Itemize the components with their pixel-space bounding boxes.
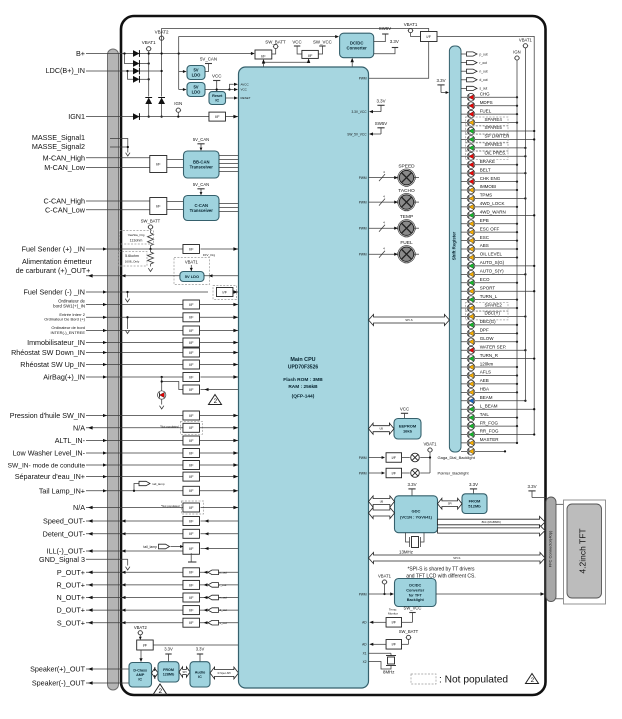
svg-text:TAIL: TAIL [480, 412, 490, 417]
svg-text:for TFT: for TFT [409, 593, 423, 597]
svg-text:PWM: PWM [359, 200, 367, 204]
svg-text:UB: UB [380, 500, 384, 503]
svg-text:Speaker(+)_OUT: Speaker(+)_OUT [30, 665, 86, 674]
svg-text:P_OUT+: P_OUT+ [57, 568, 85, 577]
svg-text:DBC(Y): DBC(Y) [485, 311, 501, 316]
svg-text:4WD_LOCK: 4WD_LOCK [480, 201, 505, 206]
svg-text:113ohm: 113ohm [130, 238, 143, 242]
svg-text:FR_FOG: FR_FOG [480, 420, 499, 425]
svg-text:I/F: I/F [391, 620, 396, 625]
svg-text:SW_BATT: SW_BATT [399, 629, 419, 634]
svg-text:Gaga_Dial_Backlight: Gaga_Dial_Backlight [438, 455, 476, 460]
svg-text:Converter: Converter [346, 46, 367, 51]
svg-text:FROM: FROM [163, 668, 174, 672]
svg-text:SW_BATT: SW_BATT [141, 219, 161, 224]
svg-text:TEMP: TEMP [400, 214, 413, 220]
svg-text:SW_IN- mode de conduite: SW_IN- mode de conduite [8, 462, 86, 469]
svg-text:SW_VCC: SW_VCC [313, 39, 332, 44]
svg-text:r_out: r_out [480, 61, 487, 65]
svg-text:de carburant (+)_OUT+: de carburant (+)_OUT+ [16, 266, 91, 275]
svg-text:I/F: I/F [426, 34, 431, 39]
svg-text:BELT: BELT [480, 167, 491, 172]
svg-text:(QFP-144): (QFP-144) [292, 393, 315, 399]
svg-text:I/F: I/F [189, 374, 194, 379]
svg-text:p_out: p_out [480, 52, 488, 56]
svg-text:*SPI-S is shared by TT drivers: *SPI-S is shared by TT drivers [407, 567, 475, 573]
svg-text:PWM: PWM [359, 471, 367, 475]
svg-text:SPEED: SPEED [398, 163, 415, 169]
svg-text:Speaker(-)_OUT: Speaker(-)_OUT [32, 679, 86, 688]
svg-text:I/F: I/F [189, 425, 194, 430]
svg-text:8bit (RGB666): 8bit (RGB666) [482, 520, 501, 524]
svg-text:AirBag(+)_IN: AirBag(+)_IN [43, 373, 85, 382]
svg-text:Detent_OUT-: Detent_OUT- [43, 529, 86, 538]
svg-text:PWM: PWM [359, 77, 367, 81]
svg-text:r_out: r_out [219, 583, 226, 587]
svg-text:d_out: d_out [480, 78, 488, 82]
svg-text:RAM : 256kB: RAM : 256kB [288, 384, 318, 390]
svg-text:FFC Connector(40p): FFC Connector(40p) [547, 530, 552, 567]
svg-text:VCC: VCC [241, 88, 248, 92]
svg-text:SW_5V_VCC: SW_5V_VCC [347, 132, 367, 136]
svg-text:2: 2 [214, 398, 218, 405]
svg-text:CHG: CHG [480, 92, 490, 97]
svg-text:SP LIMITER: SP LIMITER [485, 134, 511, 139]
svg-text:2: 2 [158, 688, 162, 695]
svg-text:s_out: s_out [480, 87, 488, 91]
svg-text:FUEL: FUEL [480, 108, 492, 113]
svg-text:16kb: 16kb [403, 429, 413, 434]
svg-text:PWM: PWM [359, 227, 367, 231]
svg-text:UB: UB [380, 428, 384, 431]
svg-text:3.3V: 3.3V [527, 484, 536, 489]
svg-text:Pointer_Backlight: Pointer_Backlight [438, 471, 470, 476]
svg-text:I/F: I/F [156, 204, 161, 209]
svg-text:IC: IC [198, 675, 202, 679]
svg-text:*Not populated: *Not populated [160, 424, 179, 428]
svg-text:FFV_Org: FFV_Org [203, 253, 216, 257]
svg-text:Speed_OUT-: Speed_OUT- [43, 517, 86, 526]
svg-text:Transceiver: Transceiver [190, 165, 214, 170]
svg-text:n_out: n_out [220, 596, 228, 600]
svg-text:N/A: N/A [73, 503, 85, 512]
svg-text:INTER(-)_ENTREE: INTER(-)_ENTREE [51, 330, 86, 335]
svg-text:I/F: I/F [189, 620, 194, 625]
svg-text:I/F: I/F [156, 162, 161, 167]
svg-text:I/F: I/F [222, 289, 227, 294]
svg-text:Transceiver: Transceiver [190, 208, 214, 213]
svg-text:I/F: I/F [308, 53, 313, 58]
svg-text:DBC(G): DBC(G) [480, 319, 496, 324]
svg-text:5V_CAN: 5V_CAN [193, 182, 209, 187]
svg-text:I/F: I/F [189, 546, 194, 551]
svg-text:512Mb: 512Mb [468, 503, 481, 508]
svg-text:I/F: I/F [391, 455, 396, 460]
svg-text:IGN: IGN [174, 101, 182, 106]
svg-text:VBAT1: VBAT1 [142, 40, 156, 45]
svg-text:C-CAN_Low: C-CAN_Low [45, 205, 86, 214]
svg-text:ESC OFF: ESC OFF [480, 226, 500, 231]
svg-text:*Not populated: *Not populated [161, 504, 180, 508]
svg-text:128Mb: 128Mb [163, 672, 175, 676]
svg-text:M-CAN_Low: M-CAN_Low [44, 163, 86, 172]
svg-text:C-CAN_High: C-CAN_High [43, 197, 85, 206]
svg-text:MASSE_Signal1: MASSE_Signal1 [32, 133, 85, 142]
svg-text:I/F: I/F [189, 413, 194, 418]
svg-text:VBAT2: VBAT2 [134, 625, 148, 630]
svg-text:SPORT: SPORT [480, 285, 496, 290]
svg-text:TPMS: TPMS [480, 193, 493, 198]
svg-text:PWM: PWM [359, 176, 367, 180]
svg-text:IC: IC [138, 678, 142, 682]
svg-text:FUEL: FUEL [400, 240, 413, 246]
svg-text:tail_lamp: tail_lamp [153, 482, 165, 486]
svg-text:TURN_L: TURN_L [480, 294, 498, 299]
svg-text:I/F: I/F [189, 531, 194, 536]
svg-text:Fuel Sender (-) _IN: Fuel Sender (-) _IN [23, 288, 85, 297]
svg-text:VBAT1: VBAT1 [185, 260, 199, 265]
svg-text:WATER SEP.: WATER SEP. [480, 344, 507, 349]
svg-text:VCC: VCC [400, 406, 409, 411]
svg-text:L_BEAM: L_BEAM [480, 403, 498, 408]
svg-text:R-Spec-SPI: R-Spec-SPI [218, 672, 232, 675]
svg-text:Audio: Audio [195, 670, 206, 674]
svg-text:DC/DC: DC/DC [350, 40, 364, 45]
svg-text:AUTO_S(G): AUTO_S(G) [480, 260, 505, 265]
svg-text:d_out: d_out [220, 608, 228, 612]
svg-text:AD: AD [362, 621, 367, 625]
svg-text:GDC: GDC [412, 509, 421, 514]
svg-text:N_OUT+: N_OUT+ [56, 593, 85, 602]
svg-text:3.3V: 3.3V [376, 98, 385, 103]
svg-text:IGN: IGN [513, 49, 520, 54]
svg-text:tail_lamp: tail_lamp [143, 545, 157, 549]
svg-text:VBAT1: VBAT1 [378, 573, 392, 578]
svg-text:Monitor: Monitor [388, 611, 398, 615]
svg-text:DPF: DPF [480, 328, 489, 333]
svg-text:ECO: ECO [480, 277, 490, 282]
svg-text:X2: X2 [363, 660, 367, 664]
svg-text:Low Washer Level_IN-: Low Washer Level_IN- [13, 449, 86, 458]
svg-text:5.6kohm: 5.6kohm [125, 254, 139, 258]
svg-text:PWM: PWM [359, 456, 367, 460]
svg-text:13MHz: 13MHz [399, 550, 413, 555]
svg-text:DC/DC: DC/DC [409, 584, 421, 588]
svg-text:IC: IC [215, 99, 219, 103]
svg-text:S_OUT+: S_OUT+ [57, 618, 85, 627]
svg-text:RESET: RESET [241, 96, 251, 100]
svg-text:I/F: I/F [189, 362, 194, 367]
svg-text:SW5V: SW5V [379, 26, 392, 31]
svg-text:4.2inch TFT: 4.2inch TFT [578, 528, 588, 573]
svg-text:Shift Register: Shift Register [452, 231, 457, 260]
svg-text:Pression d'huile SW_IN: Pression d'huile SW_IN [10, 411, 85, 420]
svg-text:TURN_R: TURN_R [480, 353, 499, 358]
svg-text:I/F: I/F [189, 608, 194, 613]
svg-text:EPB: EPB [480, 218, 489, 223]
svg-text:3.3V: 3.3V [469, 482, 478, 487]
svg-text:I/F: I/F [189, 387, 194, 392]
svg-text:C-CAN: C-CAN [195, 203, 209, 208]
svg-text:Ordinateur De Bord (+): Ordinateur De Bord (+) [44, 316, 85, 321]
svg-text:I/F: I/F [391, 642, 396, 647]
svg-text:AUTO_S(Y): AUTO_S(Y) [480, 269, 504, 274]
svg-text:I/F: I/F [189, 488, 194, 493]
svg-text:: Not populated: : Not populated [439, 675, 508, 686]
svg-text:MASSE_Signal2: MASSE_Signal2 [32, 142, 85, 151]
svg-text:YawSta_Org: YawSta_Org [128, 233, 145, 237]
svg-text:5V LDO: 5V LDO [185, 274, 199, 279]
svg-text:8MHz: 8MHz [383, 670, 394, 675]
svg-text:SPARE3: SPARE3 [485, 142, 503, 147]
svg-text:ESC: ESC [480, 235, 490, 240]
svg-text:AVCC: AVCC [241, 83, 250, 87]
svg-text:Tail Lamp_IN+: Tail Lamp_IN+ [39, 486, 85, 495]
svg-text:5V_CAN: 5V_CAN [193, 137, 209, 142]
svg-text:LDO: LDO [192, 73, 202, 78]
svg-text:IGN1: IGN1 [68, 112, 85, 121]
svg-text:Reset: Reset [212, 94, 223, 98]
svg-text:5V_CAN: 5V_CAN [200, 56, 217, 61]
svg-text:I/F: I/F [189, 582, 194, 587]
svg-text:VBAT1: VBAT1 [404, 22, 418, 27]
svg-text:R_OUT+: R_OUT+ [56, 580, 85, 589]
svg-text:HBA: HBA [480, 387, 489, 392]
svg-text:I/F: I/F [189, 595, 194, 600]
svg-text:ABS: ABS [480, 243, 489, 248]
svg-text:I/F: I/F [189, 474, 194, 479]
svg-text:I/F: I/F [189, 462, 194, 467]
svg-text:I/F: I/F [189, 450, 194, 455]
svg-text:3.3V: 3.3V [390, 39, 399, 44]
svg-text:I/F: I/F [189, 315, 194, 320]
svg-text:CHK ENG: CHK ENG [480, 176, 501, 181]
svg-text:3.3V: 3.3V [436, 78, 445, 83]
svg-text:Séparateur d'eau_IN+: Séparateur d'eau_IN+ [15, 472, 85, 481]
svg-text:MDPS: MDPS [480, 100, 493, 105]
svg-text:I/F: I/F [261, 53, 266, 58]
svg-text:GND_Signal 3: GND_Signal 3 [39, 555, 85, 564]
svg-text:X1: X1 [363, 652, 367, 656]
svg-text:I/F: I/F [189, 350, 194, 355]
svg-text:SPI-S: SPI-S [453, 556, 460, 560]
svg-text:3.3V: 3.3V [196, 647, 205, 652]
svg-text:BRAKE: BRAKE [480, 159, 495, 164]
svg-text:TACHO: TACHO [398, 188, 415, 194]
svg-text:120km: 120km [480, 361, 494, 366]
svg-text:SPARE4: SPARE4 [485, 117, 503, 122]
svg-text:Alimentation émetteur: Alimentation émetteur [22, 257, 93, 266]
svg-text:SPARE2: SPARE2 [485, 302, 503, 307]
svg-text:B+: B+ [76, 49, 85, 58]
svg-text:PWM: PWM [359, 592, 367, 596]
svg-text:3.3V: 3.3V [407, 482, 416, 487]
svg-text:3.3V_VCC: 3.3V_VCC [351, 110, 367, 114]
svg-text:BB-CAN: BB-CAN [193, 159, 210, 164]
svg-text:AEB: AEB [480, 378, 489, 383]
svg-text:SW_BATT: SW_BATT [265, 39, 286, 44]
svg-text:2: 2 [531, 677, 535, 684]
svg-text:GLOW: GLOW [480, 336, 495, 341]
svg-text:IMMOBI: IMMOBI [480, 184, 497, 189]
svg-text:p_out: p_out [220, 570, 228, 574]
svg-text:VBAT1: VBAT1 [424, 441, 438, 446]
svg-text:SW5V: SW5V [375, 121, 388, 126]
svg-text:Immobilisateur_IN: Immobilisateur_IN [27, 338, 85, 347]
svg-text:n_out: n_out [480, 70, 488, 74]
svg-text:D-Class: D-Class [133, 668, 147, 672]
svg-text:M-CAN_High: M-CAN_High [43, 153, 85, 162]
svg-text:Converter: Converter [406, 588, 424, 592]
svg-text:I/F: I/F [189, 438, 194, 443]
svg-text:bord SW1(+)_IN: bord SW1(+)_IN [53, 304, 85, 309]
svg-text:OIL LEVEL: OIL LEVEL [480, 252, 503, 257]
svg-text:BEAM: BEAM [480, 395, 493, 400]
svg-text:Rhéostat SW Up_IN: Rhéostat SW Up_IN [20, 360, 85, 369]
svg-text:Rhéostat SW Down_IN: Rhéostat SW Down_IN [11, 348, 85, 357]
svg-text:I/F: I/F [189, 518, 194, 523]
svg-text:I/F: I/F [189, 570, 194, 575]
svg-text:(VC1N : YGV641): (VC1N : YGV641) [400, 515, 433, 520]
svg-text:N/A: N/A [73, 423, 85, 432]
svg-text:SW_VCC: SW_VCC [404, 605, 422, 610]
svg-text:D_OUT+: D_OUT+ [56, 606, 85, 615]
svg-text:LDC(B+)_IN: LDC(B+)_IN [46, 66, 85, 75]
svg-text:Fuel Sender (+) _IN: Fuel Sender (+) _IN [22, 245, 85, 254]
svg-text:LDO: LDO [192, 90, 202, 95]
svg-text:I/F: I/F [189, 246, 194, 251]
svg-text:Main CPU: Main CPU [290, 357, 315, 363]
svg-text:I/F: I/F [215, 114, 220, 119]
svg-text:I/F: I/F [189, 328, 194, 333]
svg-text:RR_FOG: RR_FOG [480, 429, 499, 434]
svg-text:Flash ROM : 3MB: Flash ROM : 3MB [283, 377, 323, 383]
svg-text:VCC: VCC [212, 73, 222, 78]
svg-text:VBAT1: VBAT1 [519, 37, 533, 42]
svg-text:VCC: VCC [292, 39, 301, 44]
svg-text:I/F: I/F [391, 470, 396, 475]
svg-text:Backlight: Backlight [407, 598, 425, 602]
svg-text:I/F: I/F [143, 643, 148, 648]
svg-text:4WD_WARN: 4WD_WARN [480, 210, 506, 215]
svg-text:AFLS: AFLS [480, 370, 491, 375]
svg-text:PWM: PWM [359, 253, 367, 257]
svg-text:SPARE5: SPARE5 [485, 125, 503, 130]
svg-text:ALTL_IN-: ALTL_IN- [55, 436, 86, 445]
svg-text:SPI: SPI [448, 503, 452, 506]
svg-text:OIL PRES.: OIL PRES. [485, 151, 507, 156]
svg-text:3.3V: 3.3V [164, 647, 173, 652]
svg-text:SPI-S: SPI-S [405, 318, 412, 322]
svg-text:MASTER: MASTER [480, 437, 500, 442]
svg-text:UPD70F3526: UPD70F3526 [288, 365, 319, 371]
svg-text:s_out: s_out [220, 621, 228, 625]
svg-text:AMP: AMP [136, 673, 145, 677]
svg-text:I/F: I/F [189, 302, 194, 307]
svg-text:AD: AD [362, 643, 367, 647]
svg-text:1608_Only: 1608_Only [125, 259, 140, 263]
svg-text:I/F: I/F [189, 505, 194, 510]
svg-text:I/F: I/F [189, 340, 194, 345]
svg-text:SPI: SPI [182, 671, 186, 674]
